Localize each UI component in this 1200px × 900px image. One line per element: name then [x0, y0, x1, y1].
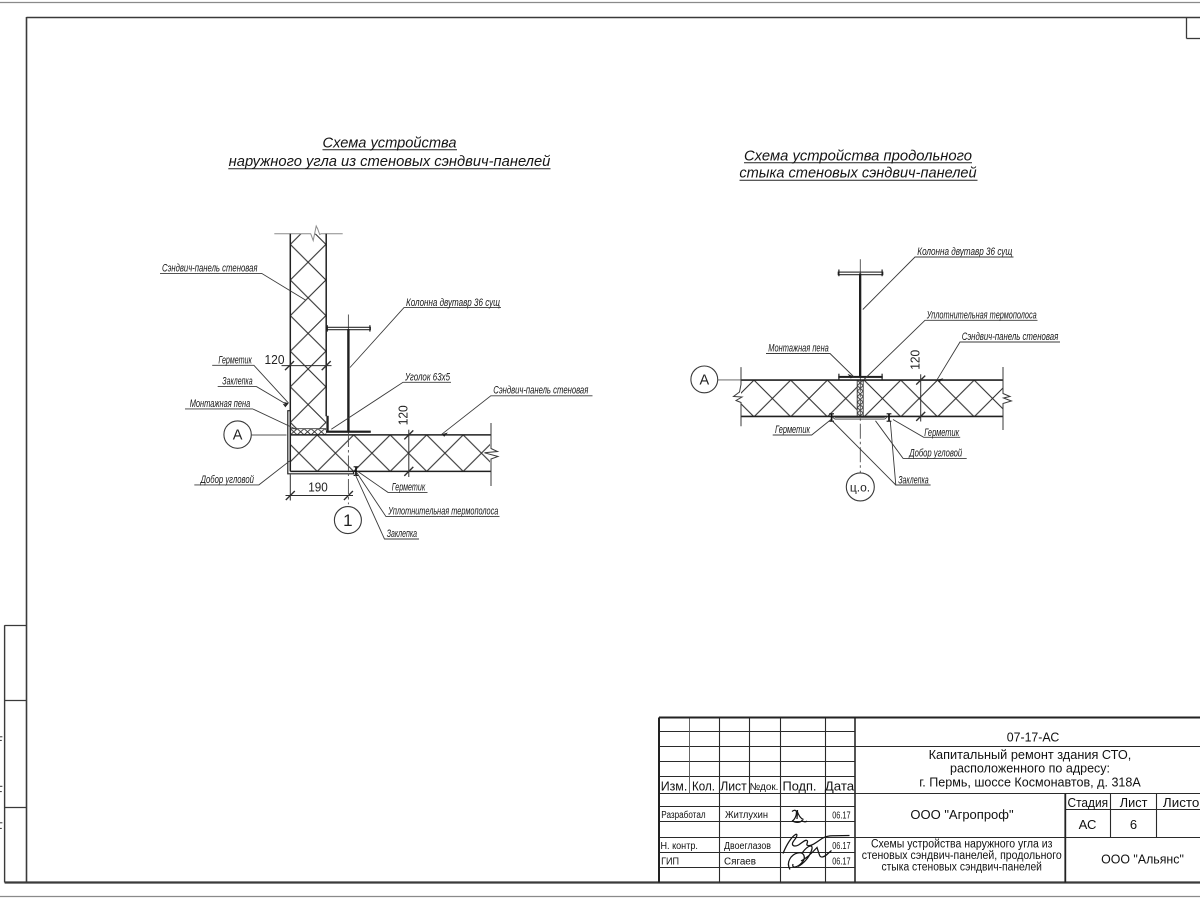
svg-text:Уплотнительная термополоса: Уплотнительная термополоса	[926, 309, 1037, 321]
svg-text:Житлухин: Житлухин	[725, 810, 768, 821]
svg-text:Н. контр.: Н. контр.	[661, 841, 698, 852]
svg-text:Сягаев: Сягаев	[724, 857, 756, 868]
svg-text:наружного угла из стеновых сэн: наружного угла из стеновых сэндвич-панел…	[229, 153, 551, 170]
svg-text:Монтажная пена: Монтажная пена	[768, 343, 829, 355]
svg-text:Заклепка: Заклепка	[898, 474, 929, 486]
svg-text:стыка стеновых сэндвич-панелей: стыка стеновых сэндвич-панелей	[739, 165, 977, 182]
svg-text:Стадия: Стадия	[1068, 796, 1109, 810]
svg-text:Герметик: Герметик	[775, 424, 811, 436]
svg-text:Изм.: Изм.	[661, 780, 688, 794]
svg-text:ц.о.: ц.о.	[850, 480, 870, 494]
svg-text:190: 190	[308, 481, 328, 495]
svg-text:Двоеглазов: Двоеглазов	[724, 841, 771, 852]
svg-text:А: А	[233, 427, 243, 443]
svg-text:Дата: Дата	[825, 780, 854, 794]
svg-text:Сэндвич-панель стеновая: Сэндвич-панель стеновая	[493, 384, 588, 396]
svg-text:ГИП: ГИП	[661, 857, 679, 868]
svg-text:Разработал: Разработал	[661, 810, 706, 821]
svg-text:Сэндвич-панель стеновая: Сэндвич-панель стеновая	[162, 262, 258, 274]
svg-text:Колонна двутавр 36 сущ: Колонна двутавр 36 сущ	[917, 246, 1012, 258]
svg-text:Схема устройства продольного: Схема устройства продольного	[744, 147, 972, 164]
svg-text:Уголок 63х5: Уголок 63х5	[404, 371, 450, 383]
svg-text:Колонна двутавр 36 сущ: Колонна двутавр 36 сущ	[406, 297, 500, 309]
svg-text:6: 6	[1130, 817, 1137, 832]
svg-text:г. Пермь, шоссе Космонавтов, д: г. Пермь, шоссе Космонавтов, д. 318А	[919, 774, 1141, 789]
svg-text:06.17: 06.17	[832, 841, 850, 852]
svg-text:№док.: №док.	[750, 782, 779, 793]
svg-text:АС: АС	[1079, 817, 1097, 832]
svg-text:А: А	[699, 372, 709, 388]
svg-text:Заклепка: Заклепка	[222, 376, 252, 388]
svg-text:06.17: 06.17	[832, 811, 850, 822]
svg-text:Лист: Лист	[1120, 796, 1148, 810]
svg-text:Подп.: Подп.	[783, 780, 817, 794]
svg-text:Добор угловой: Добор угловой	[908, 447, 962, 459]
svg-text:стеновых сэндвич-панелей, прод: стеновых сэндвич-панелей, продольного	[862, 850, 1062, 862]
svg-text:стыка стеновых сэндвич-панелей: стыка стеновых сэндвич-панелей	[881, 862, 1042, 874]
svg-text:Схемы устройства наружного угл: Схемы устройства наружного угла из	[871, 839, 1053, 851]
svg-text:06.17: 06.17	[832, 857, 850, 868]
svg-text:Герметик: Герметик	[392, 481, 426, 493]
svg-text:Добор угловой: Добор угловой	[199, 474, 254, 486]
svg-text:Схема устройства: Схема устройства	[323, 134, 457, 151]
svg-text:Кол.: Кол.	[692, 780, 715, 794]
svg-text:120: 120	[908, 350, 922, 370]
svg-text:120: 120	[265, 353, 285, 367]
svg-text:Монтажная пена: Монтажная пена	[190, 398, 251, 410]
svg-text:Уплотнительная термополоса: Уплотнительная термополоса	[388, 505, 499, 517]
svg-text:120: 120	[397, 405, 411, 425]
svg-text:ООО "Агропроф": ООО "Агропроф"	[910, 808, 1013, 822]
svg-text:1: 1	[343, 511, 352, 530]
svg-text:Листов: Листов	[1163, 796, 1200, 810]
svg-text:Лист: Лист	[720, 780, 747, 794]
svg-text:Заклепка: Заклепка	[387, 528, 417, 540]
svg-text:ООО "Альянс": ООО "Альянс"	[1101, 852, 1184, 867]
svg-text:Герметик: Герметик	[218, 354, 252, 366]
svg-text:07-17-АС: 07-17-АС	[1007, 730, 1060, 745]
svg-text:Сэндвич-панель стеновая: Сэндвич-панель стеновая	[962, 331, 1059, 343]
